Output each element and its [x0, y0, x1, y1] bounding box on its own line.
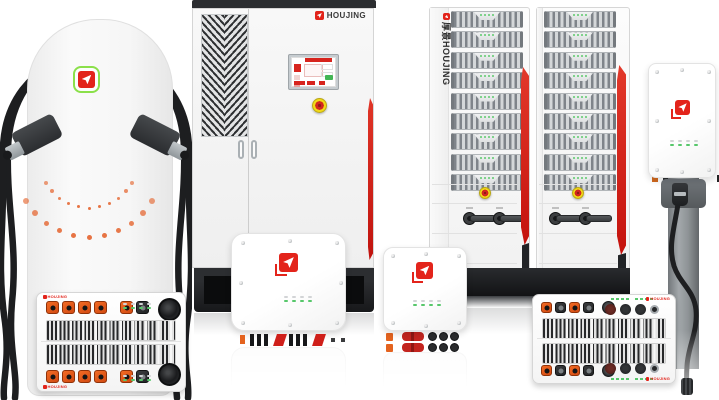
arrow-icon [420, 266, 430, 276]
dc-connector [46, 370, 59, 383]
dc-connector [541, 302, 552, 313]
rotary-switch-lever [586, 215, 612, 222]
brand-logo: HOUJING [315, 11, 366, 20]
dc-connector [62, 301, 75, 314]
round-connector [650, 364, 659, 373]
brand-logo-icon [416, 262, 433, 279]
module-divider [537, 338, 671, 339]
wallbox-charger [383, 247, 467, 331]
hmi-screen [291, 57, 336, 87]
round-connectors [605, 363, 659, 374]
brand-logo-icon [443, 13, 450, 20]
indicator-dot [57, 228, 62, 233]
cabinet-doors: HOUJING [192, 8, 374, 268]
brand-mini-label: HOUJING [43, 385, 67, 389]
terminal-connectors [240, 333, 348, 346]
brand-logo-icon [43, 385, 47, 389]
power-module-unit: HOUJING HOUJING [36, 292, 186, 392]
brand-logo-icon [43, 295, 47, 299]
indicator-dot [32, 210, 38, 216]
rotary-switch-lever [500, 215, 524, 222]
indicator-dot [44, 181, 48, 185]
terminal-connectors [386, 343, 461, 352]
dc-connector [569, 365, 580, 376]
mounting-screw [241, 241, 245, 245]
round-connectors [605, 304, 659, 315]
terminal-connectors [386, 332, 461, 341]
indicator-dot [149, 198, 155, 204]
indicator-dot [116, 228, 121, 233]
rack-base [446, 268, 630, 296]
wallbox-reflection [383, 352, 467, 397]
mounting-screw [391, 321, 395, 325]
vent-grille [542, 318, 666, 339]
mounting-screw [457, 254, 461, 258]
indicator-dot [50, 189, 54, 193]
cabinet-top-panel [192, 0, 376, 8]
indicator-dot [130, 181, 134, 185]
rack-power-module [544, 154, 616, 171]
rack-power-module [544, 113, 616, 130]
dc-connector [541, 365, 552, 376]
vent-grille [46, 320, 176, 341]
round-connector [635, 304, 646, 315]
emergency-stop-button [312, 98, 327, 113]
brand-mini-label: HOUJING [646, 377, 670, 381]
cooling-fan [158, 298, 181, 321]
indicator-dot [67, 202, 70, 205]
brand-logo-icon [675, 100, 690, 115]
mounting-screw [680, 170, 684, 174]
mounting-screw [335, 321, 339, 325]
mounting-screw [339, 281, 343, 285]
arrow-icon [445, 15, 449, 19]
rack-vertical-brand-label: 厚景HOUJING [440, 13, 453, 86]
brand-logo-icon [315, 11, 324, 20]
cooling-fan [158, 363, 181, 386]
indicator-dot [88, 207, 91, 210]
mounting-screw [424, 252, 428, 256]
brand-mini-label: HOUJING [43, 295, 67, 299]
indicator-dot [98, 205, 101, 208]
wall-mounted-charger [648, 63, 716, 178]
dc-connector [78, 370, 91, 383]
indicator-dot [117, 197, 120, 200]
brand-vertical-wordmark: 厚景HOUJING [440, 22, 453, 86]
mounting-screw [680, 68, 684, 72]
dc-connector [94, 301, 107, 314]
brand-mini-wordmark: HOUJING [48, 295, 68, 299]
round-connector [605, 363, 616, 374]
round-connector [620, 363, 631, 374]
mounting-screw [335, 241, 339, 245]
vent-grille [46, 344, 176, 365]
rack-power-module [544, 133, 616, 150]
indicator-dot [71, 233, 76, 238]
mounting-screw [707, 119, 711, 123]
cable-plug [681, 378, 693, 395]
mounting-screw [707, 70, 711, 74]
round-connector [635, 363, 646, 374]
vent-grille [201, 14, 248, 137]
module-divider [41, 341, 181, 342]
rack-power-module [451, 113, 523, 130]
brand-mini-wordmark: HOUJING [48, 385, 68, 389]
rack-module-bay [544, 11, 616, 191]
door-handle [251, 140, 257, 159]
dc-connector [569, 302, 580, 313]
dc-connector [78, 301, 91, 314]
mounting-screw [457, 321, 461, 325]
status-leds [413, 300, 441, 306]
rack-module-bay [451, 11, 523, 191]
status-leds [284, 296, 312, 302]
round-connector [605, 304, 616, 315]
mounting-screw [424, 324, 428, 328]
rack-power-module [544, 11, 616, 28]
indicator-dot [44, 221, 49, 226]
rack-power-module [544, 93, 616, 110]
brand-wordmark: HOUJING [327, 11, 366, 20]
accent-stripe [617, 65, 626, 255]
indicator-dot [58, 197, 61, 200]
arrow-icon [283, 257, 294, 268]
rack-power-module [451, 154, 523, 171]
indicator-dot [124, 189, 128, 193]
arrow-icon [317, 13, 322, 18]
status-leds [123, 375, 151, 381]
arrow-icon [678, 103, 686, 111]
accent-stripe [368, 98, 373, 260]
wallbox-reflection [231, 347, 346, 397]
emergency-stop-button [572, 187, 584, 199]
ac-connector [555, 302, 566, 313]
module-rack [536, 7, 630, 294]
dc-connector [46, 301, 59, 314]
mounting-screw [288, 239, 292, 243]
ac-connector [583, 302, 594, 313]
rack-side-panel [537, 8, 543, 293]
rack-power-module [451, 31, 523, 48]
vent-grille [542, 343, 666, 364]
dc-connector [94, 370, 107, 383]
indicator-dot [140, 210, 146, 216]
status-leds [123, 303, 151, 309]
round-connector [620, 304, 631, 315]
brand-mini-label: HOUJING [646, 297, 670, 301]
rack-power-module [451, 11, 523, 28]
charging-gun [672, 183, 688, 206]
mounting-screw [239, 281, 243, 285]
rack-power-module [451, 72, 523, 89]
connector-row [541, 364, 615, 377]
dc-connector [62, 370, 75, 383]
brand-logo-icon [279, 253, 298, 272]
mounting-screw [655, 119, 659, 123]
rack-power-module [451, 93, 523, 110]
rack-power-module [451, 133, 523, 150]
indicator-dot [129, 221, 134, 226]
status-leds [670, 140, 698, 146]
brand-mini-wordmark: HOUJING [650, 297, 670, 301]
mounting-screw [391, 254, 395, 258]
brand-logo-icon [646, 377, 650, 381]
product-showcase: HOUJING [0, 0, 719, 400]
emergency-stop-button [479, 187, 491, 199]
mounting-screw [655, 70, 659, 74]
ac-connector [583, 365, 594, 376]
hmi-display [288, 54, 339, 90]
mounting-screw [707, 168, 711, 172]
mounting-screw [288, 323, 292, 327]
indicator-dot [23, 198, 29, 204]
rack-power-module [544, 72, 616, 89]
indicator-dot [87, 235, 92, 240]
wallbox-charger [231, 233, 346, 331]
power-module-unit: HOUJING HOUJING [532, 294, 676, 384]
rack-power-module [544, 31, 616, 48]
accent-stripe [521, 67, 529, 245]
mounting-screw [655, 168, 659, 172]
brand-mini-wordmark: HOUJING [650, 377, 670, 381]
door-handle [238, 140, 244, 159]
door-seam [248, 9, 249, 267]
indicator-dot [77, 205, 80, 208]
rack-power-module [544, 52, 616, 69]
brand-logo-icon [646, 297, 650, 301]
rack-power-module [451, 52, 523, 69]
connector-row [541, 301, 615, 314]
mounting-screw [241, 321, 245, 325]
indicator-dot [108, 202, 111, 205]
indicator-dot [102, 233, 107, 238]
ac-connector [555, 365, 566, 376]
round-connector [650, 305, 659, 314]
